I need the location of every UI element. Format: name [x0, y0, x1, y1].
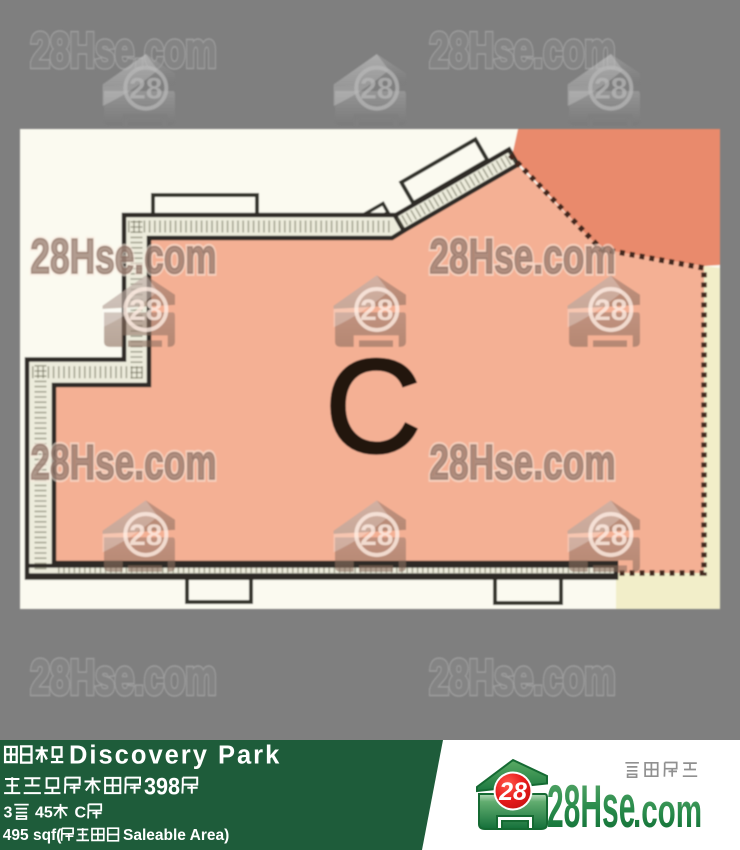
- svg-text:28: 28: [129, 294, 162, 327]
- svg-text:28: 28: [129, 73, 162, 106]
- svg-text:398: 398: [144, 773, 180, 800]
- svg-text:28: 28: [594, 519, 627, 552]
- svg-text:Discovery Park: Discovery Park: [69, 742, 281, 770]
- svg-text:Saleable Area): Saleable Area): [123, 827, 229, 844]
- svg-text:.com: .com: [633, 785, 702, 838]
- svg-text:28: 28: [594, 73, 627, 106]
- svg-text:C: C: [325, 333, 421, 481]
- svg-text:28Hse.com: 28Hse.com: [429, 23, 615, 78]
- svg-text:28Hse.com: 28Hse.com: [429, 229, 615, 284]
- svg-text:45: 45: [35, 805, 53, 822]
- svg-text:28Hse: 28Hse: [547, 774, 635, 841]
- svg-text:28: 28: [594, 294, 627, 327]
- svg-text:28: 28: [129, 519, 162, 552]
- svg-text:28Hse.com: 28Hse.com: [30, 229, 216, 284]
- svg-text:28Hse.com: 28Hse.com: [429, 435, 615, 490]
- svg-text:28: 28: [360, 519, 393, 552]
- svg-text:28Hse.com: 28Hse.com: [30, 650, 216, 705]
- svg-text:3: 3: [4, 805, 13, 822]
- svg-text:495 sqf(: 495 sqf(: [3, 827, 62, 844]
- svg-text:28Hse.com: 28Hse.com: [429, 650, 615, 705]
- svg-text:28: 28: [360, 73, 393, 106]
- svg-text:28: 28: [360, 294, 393, 327]
- svg-text:28Hse.com: 28Hse.com: [30, 435, 216, 490]
- svg-text:C: C: [75, 805, 87, 822]
- svg-text:28: 28: [498, 778, 527, 806]
